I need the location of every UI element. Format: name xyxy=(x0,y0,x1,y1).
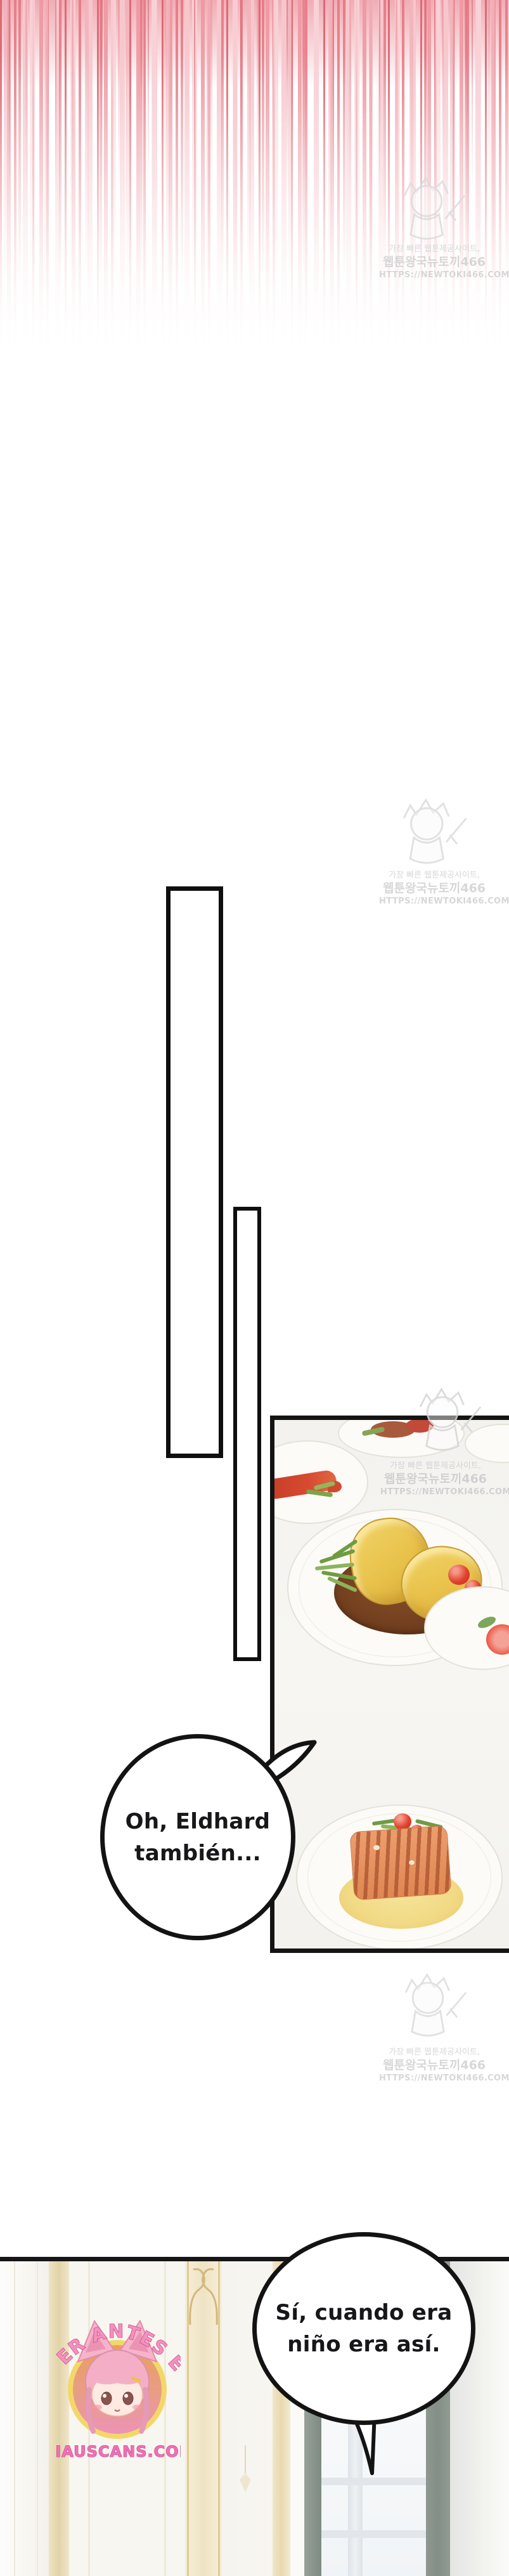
watermark-url: HTTPS://NEWTOKI466.COM xyxy=(379,896,489,907)
plate-top xyxy=(338,1416,465,1458)
watermark-sitename: 웹툰왕국뉴토끼466 xyxy=(379,2058,489,2073)
door-panel-line xyxy=(37,2261,38,2576)
white-door xyxy=(0,2261,49,2576)
webtoon-page: 가장 빠른 웹툰제공사이트, 웹툰왕국뉴토끼466 HTTPS://NEWTOK… xyxy=(0,0,509,2576)
tomato-slice xyxy=(486,1624,509,1655)
window-mullion-horizontal xyxy=(321,2530,426,2538)
logo-site-text: MIAUSCANS.COM xyxy=(54,2443,181,2461)
empty-panel-thin xyxy=(233,1207,261,1661)
catgirl-eye xyxy=(101,2392,112,2405)
speech-text: también... xyxy=(134,1837,261,1869)
speech-bubble-2: Sí, cuando era niño era así. xyxy=(252,2232,475,2425)
crystal-ornament xyxy=(240,2473,251,2492)
steak-highlight xyxy=(373,1845,380,1850)
site-watermark: 가장 빠른 웹툰제공사이트, 웹툰왕국뉴토끼466 HTTPS://NEWTOK… xyxy=(379,2047,489,2084)
watermark-sitename: 웹툰왕국뉴토끼466 xyxy=(379,881,489,896)
door-panel-line xyxy=(14,2261,15,2576)
meat-slices xyxy=(406,1419,434,1433)
speech-text: Sí, cuando era xyxy=(276,2297,453,2329)
speech-text: Oh, Eldhard xyxy=(126,1806,271,1837)
chibi-watermark-icon xyxy=(388,1967,477,2043)
white-pillar xyxy=(475,2261,509,2576)
eye-highlight xyxy=(103,2394,106,2398)
food-table-panel xyxy=(270,1416,509,1953)
steak-highlight xyxy=(409,1860,415,1865)
empty-panel-tall xyxy=(166,886,223,1458)
wall-section xyxy=(237,2261,254,2576)
watermark-tagline: 가장 빠른 웹툰제공사이트, xyxy=(379,2047,489,2058)
miauscans-logo: LEER ANTES EN MIAUSCANS.COM xyxy=(54,2307,181,2462)
speedline-fade xyxy=(0,0,509,374)
blush xyxy=(93,2405,102,2410)
plate-top-right xyxy=(465,1424,509,1463)
plate-lobster xyxy=(270,1440,368,1524)
eye-highlight xyxy=(124,2394,128,2398)
speedline-background xyxy=(0,0,509,374)
watermark-url: HTTPS://NEWTOKI466.COM xyxy=(379,2073,489,2084)
speech-bubble-1: Oh, Eldhard también... xyxy=(100,1734,295,1940)
catgirl-eye xyxy=(123,2392,133,2405)
salmon-steak xyxy=(349,1825,451,1900)
plate-salmon xyxy=(296,1804,503,1950)
pillar-scroll-ornament xyxy=(185,2261,222,2331)
speech-text: niño era así. xyxy=(287,2329,441,2360)
ornament-cord xyxy=(245,2445,246,2473)
watermark-tagline: 가장 빠른 웹툰제공사이트, xyxy=(379,870,489,881)
chibi-watermark-icon xyxy=(385,793,477,869)
lobster-claw xyxy=(270,1469,274,1485)
ornate-pillar xyxy=(185,2261,222,2576)
blush xyxy=(132,2405,141,2410)
site-watermark: 가장 빠른 웹툰제공사이트, 웹툰왕국뉴토끼466 HTTPS://NEWTOK… xyxy=(379,870,489,907)
